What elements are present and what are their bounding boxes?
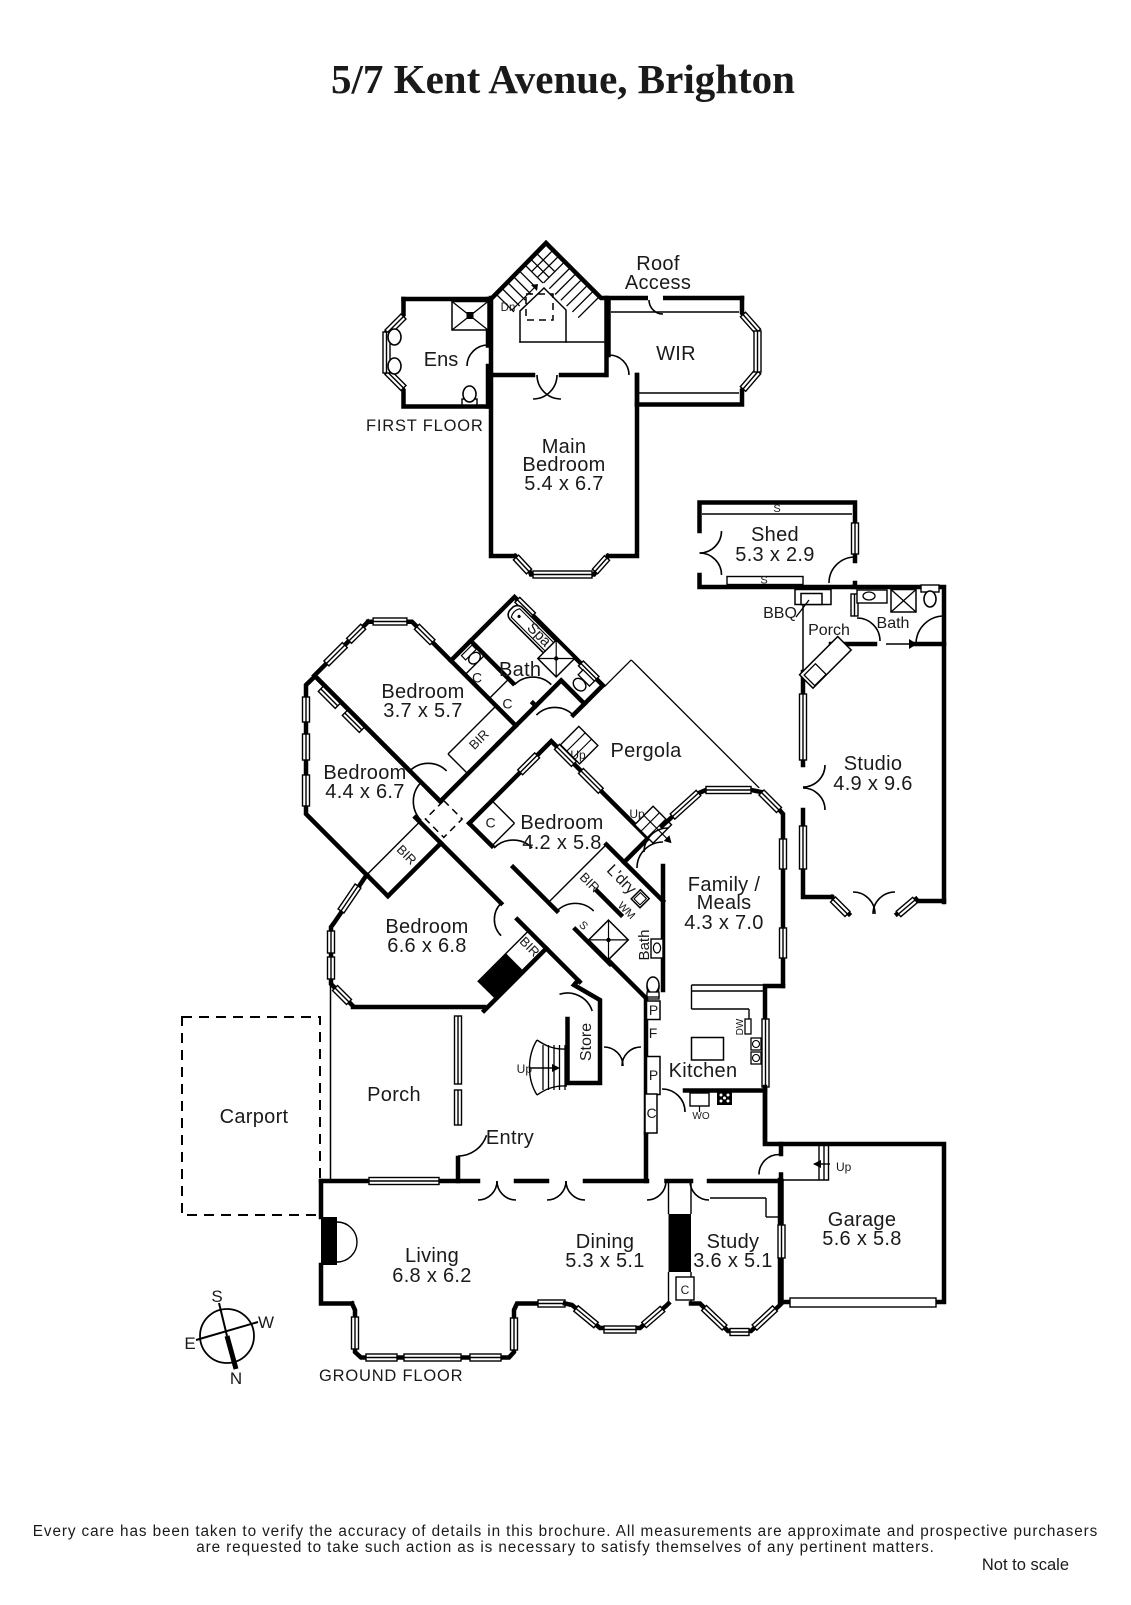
svg-text:5.3 x 2.9: 5.3 x 2.9	[735, 544, 814, 566]
svg-text:Up: Up	[629, 807, 645, 821]
svg-text:3.6 x 5.1: 3.6 x 5.1	[693, 1250, 772, 1272]
svg-text:E: E	[184, 1334, 195, 1353]
svg-text:5.6 x 5.8: 5.6 x 5.8	[822, 1228, 901, 1250]
svg-text:3.7 x 5.7: 3.7 x 5.7	[383, 700, 462, 722]
svg-text:5.4 x 6.7: 5.4 x 6.7	[524, 473, 603, 495]
svg-text:6.6 x 6.8: 6.6 x 6.8	[387, 935, 466, 957]
svg-text:Entry: Entry	[486, 1127, 534, 1149]
svg-text:Bath: Bath	[636, 930, 653, 961]
svg-text:S: S	[760, 575, 767, 587]
svg-text:are requested to take such act: are requested to take such action as is …	[196, 1539, 935, 1556]
svg-text:C: C	[681, 1283, 690, 1297]
svg-text:4.3 x 7.0: 4.3 x 7.0	[684, 912, 763, 934]
svg-text:F: F	[649, 1025, 658, 1041]
svg-text:Pergola: Pergola	[610, 740, 682, 762]
svg-text:P: P	[649, 1002, 658, 1018]
svg-text:Every care has been taken to v: Every care has been taken to verify the …	[33, 1523, 1098, 1540]
svg-text:FIRST FLOOR: FIRST FLOOR	[366, 417, 484, 435]
svg-text:Up: Up	[836, 1160, 852, 1174]
svg-text:N: N	[230, 1369, 242, 1388]
svg-text:Kitchen: Kitchen	[669, 1060, 738, 1082]
svg-text:Carport: Carport	[220, 1106, 289, 1128]
svg-text:P: P	[649, 1067, 658, 1083]
svg-text:Not to scale: Not to scale	[982, 1556, 1069, 1574]
svg-text:WIR: WIR	[656, 343, 696, 365]
svg-text:C: C	[502, 696, 512, 712]
svg-text:Porch: Porch	[808, 622, 850, 639]
svg-text:Store: Store	[578, 1023, 595, 1061]
svg-text:Studio: Studio	[844, 753, 903, 775]
svg-text:Bedroom: Bedroom	[520, 812, 603, 834]
svg-text:WO: WO	[692, 1111, 709, 1122]
svg-text:Ens: Ens	[424, 349, 458, 371]
svg-text:Access: Access	[625, 272, 691, 294]
svg-text:S: S	[773, 503, 780, 515]
svg-text:Meals: Meals	[697, 892, 752, 914]
svg-text:DW: DW	[735, 1018, 746, 1035]
svg-text:C: C	[646, 1105, 656, 1121]
svg-text:4.9 x 9.6: 4.9 x 9.6	[833, 773, 912, 795]
svg-text:Dn: Dn	[501, 302, 516, 314]
svg-text:S: S	[211, 1287, 222, 1306]
svg-text:Up: Up	[517, 1062, 533, 1076]
svg-text:Living: Living	[405, 1245, 459, 1267]
svg-text:GROUND FLOOR: GROUND FLOOR	[319, 1367, 463, 1385]
svg-text:4.2 x 5.8: 4.2 x 5.8	[522, 832, 601, 854]
svg-text:Shed: Shed	[751, 524, 799, 546]
svg-text:6.8 x 6.2: 6.8 x 6.2	[392, 1265, 471, 1287]
svg-text:BBQ: BBQ	[763, 605, 797, 622]
svg-text:Bath: Bath	[499, 659, 541, 681]
svg-text:Bath: Bath	[877, 615, 910, 632]
svg-text:5.3 x 5.1: 5.3 x 5.1	[565, 1250, 644, 1272]
svg-text:C: C	[485, 815, 495, 831]
svg-text:5/7 Kent Avenue, Brighton: 5/7 Kent Avenue, Brighton	[331, 56, 795, 102]
svg-text:C: C	[472, 670, 482, 686]
svg-text:Porch: Porch	[367, 1084, 421, 1106]
svg-text:4.4 x 6.7: 4.4 x 6.7	[325, 781, 404, 803]
svg-text:W: W	[258, 1313, 274, 1332]
